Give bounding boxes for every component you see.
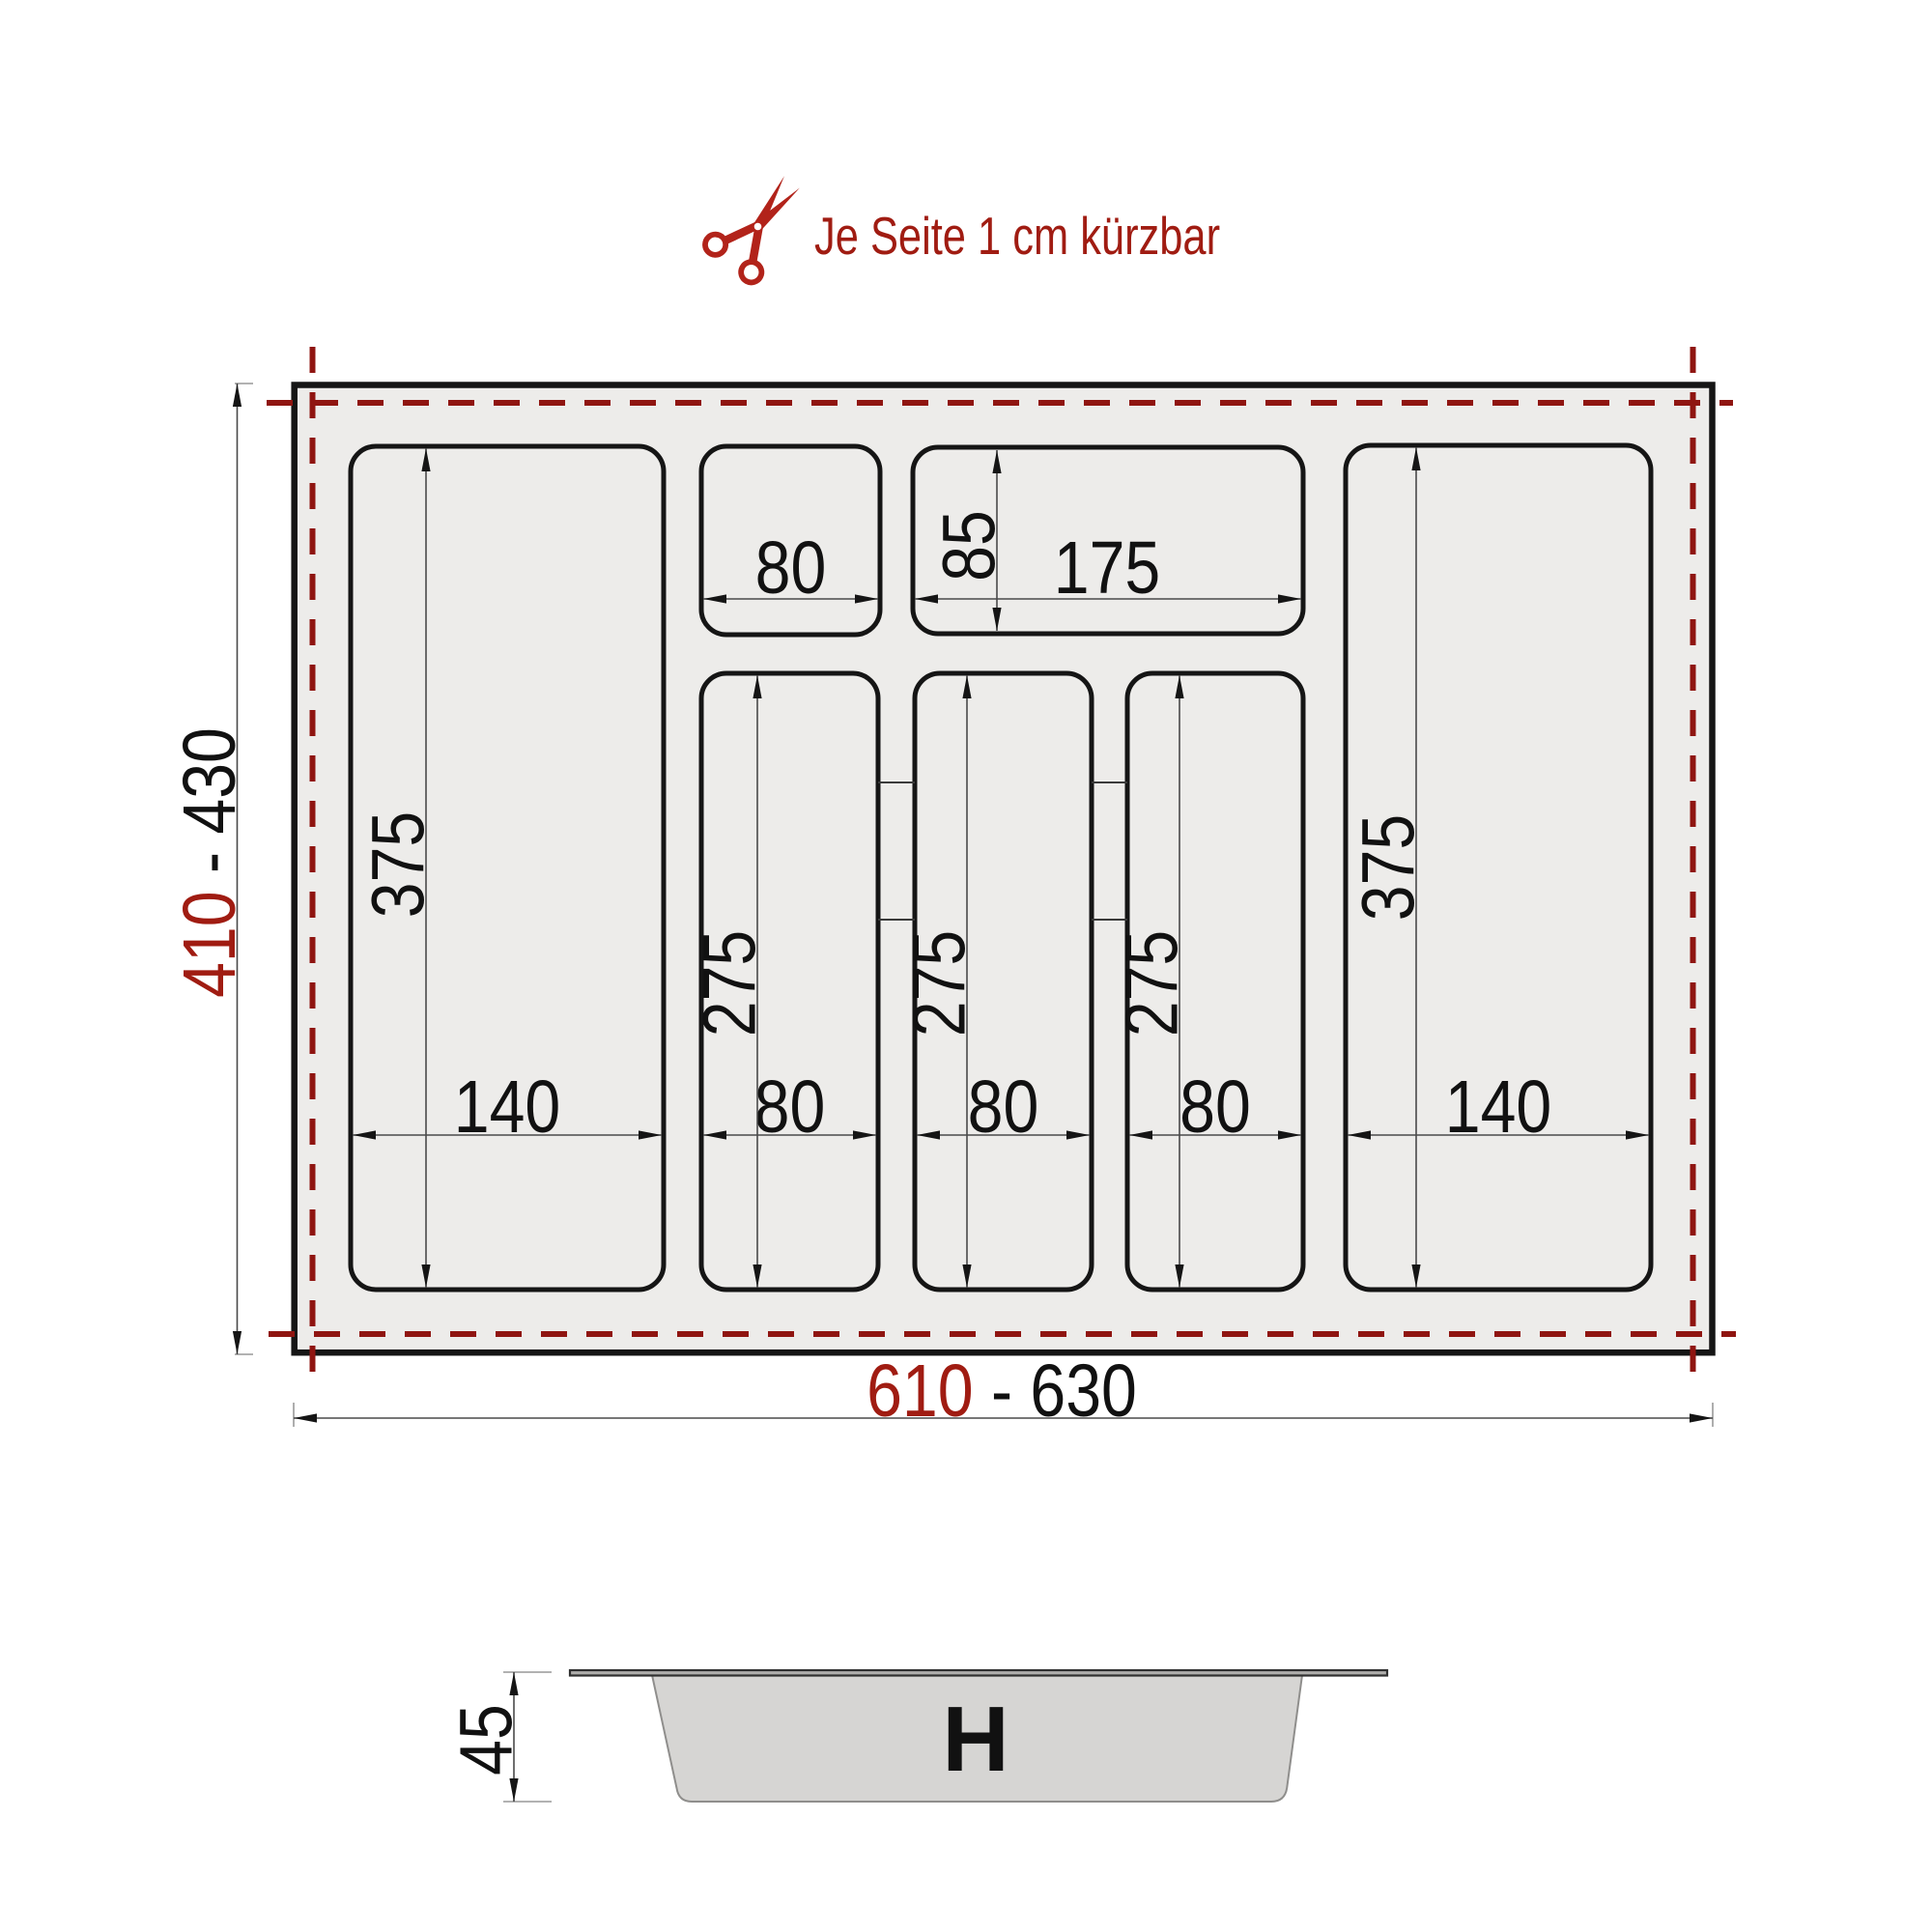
svg-text:45: 45: [445, 1704, 528, 1776]
svg-text:275: 275: [898, 930, 981, 1037]
svg-text:140: 140: [1445, 1065, 1551, 1149]
svg-text:175: 175: [1054, 526, 1160, 610]
svg-text:140: 140: [454, 1065, 560, 1149]
svg-text:80: 80: [1179, 1065, 1251, 1149]
svg-text:275: 275: [689, 930, 772, 1037]
svg-text:375: 375: [357, 811, 440, 918]
svg-text:Je Seite 1 cm kürzbar: Je Seite 1 cm kürzbar: [814, 206, 1220, 266]
svg-text:610 - 630: 610 - 630: [867, 1350, 1137, 1433]
svg-text:H: H: [942, 1688, 1009, 1791]
svg-text:85: 85: [928, 510, 1011, 582]
svg-text:375: 375: [1348, 814, 1431, 921]
svg-text:410 - 430: 410 - 430: [168, 727, 251, 998]
svg-text:275: 275: [1111, 930, 1194, 1037]
svg-text:80: 80: [968, 1065, 1039, 1149]
svg-text:80: 80: [754, 1065, 826, 1149]
svg-text:80: 80: [755, 526, 827, 610]
